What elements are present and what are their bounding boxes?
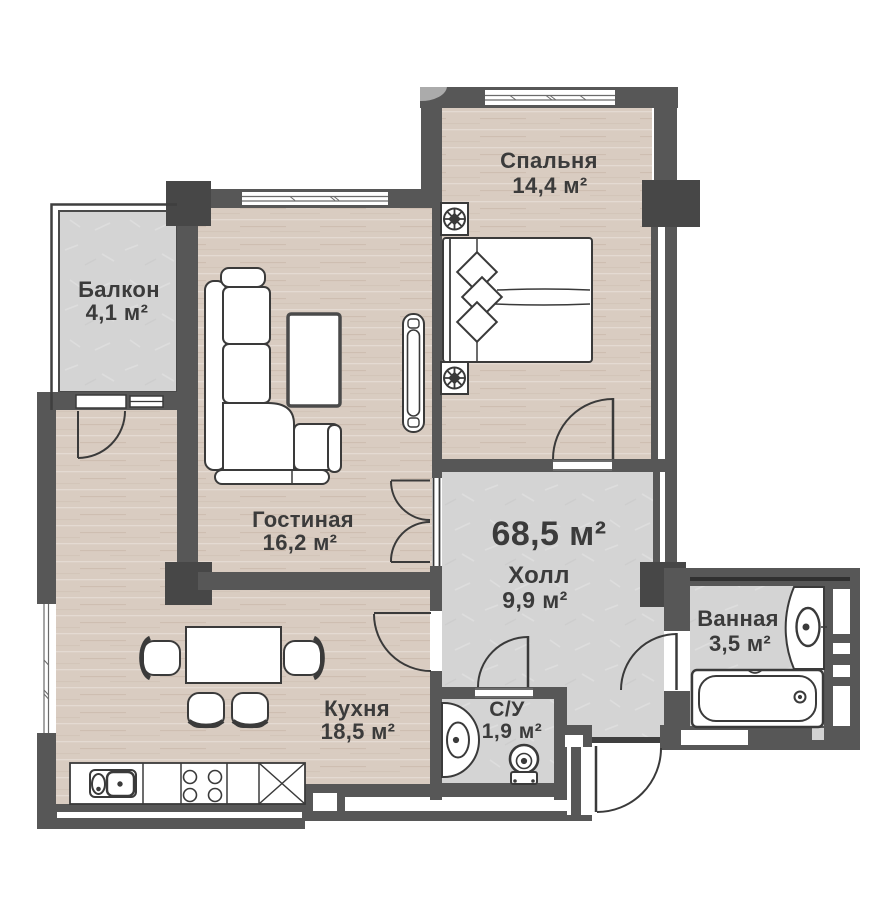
- svg-text:Холл: Холл: [508, 562, 570, 589]
- svg-text:14,4 м²: 14,4 м²: [512, 173, 587, 198]
- svg-text:9,9 м²: 9,9 м²: [502, 587, 567, 613]
- svg-text:68,5 м²: 68,5 м²: [492, 515, 607, 553]
- svg-text:4,1 м²: 4,1 м²: [86, 300, 149, 325]
- svg-text:С/У: С/У: [489, 698, 525, 721]
- svg-text:Гостиная: Гостиная: [252, 507, 354, 532]
- svg-text:Кухня: Кухня: [324, 696, 390, 721]
- svg-text:Балкон: Балкон: [78, 277, 160, 302]
- svg-text:18,5 м²: 18,5 м²: [321, 719, 396, 744]
- svg-text:Ванная: Ванная: [697, 606, 779, 631]
- svg-text:Спальня: Спальня: [500, 148, 598, 173]
- svg-text:3,5 м²: 3,5 м²: [709, 631, 771, 656]
- svg-text:16,2 м²: 16,2 м²: [263, 530, 338, 555]
- svg-text:1,9 м²: 1,9 м²: [482, 720, 543, 743]
